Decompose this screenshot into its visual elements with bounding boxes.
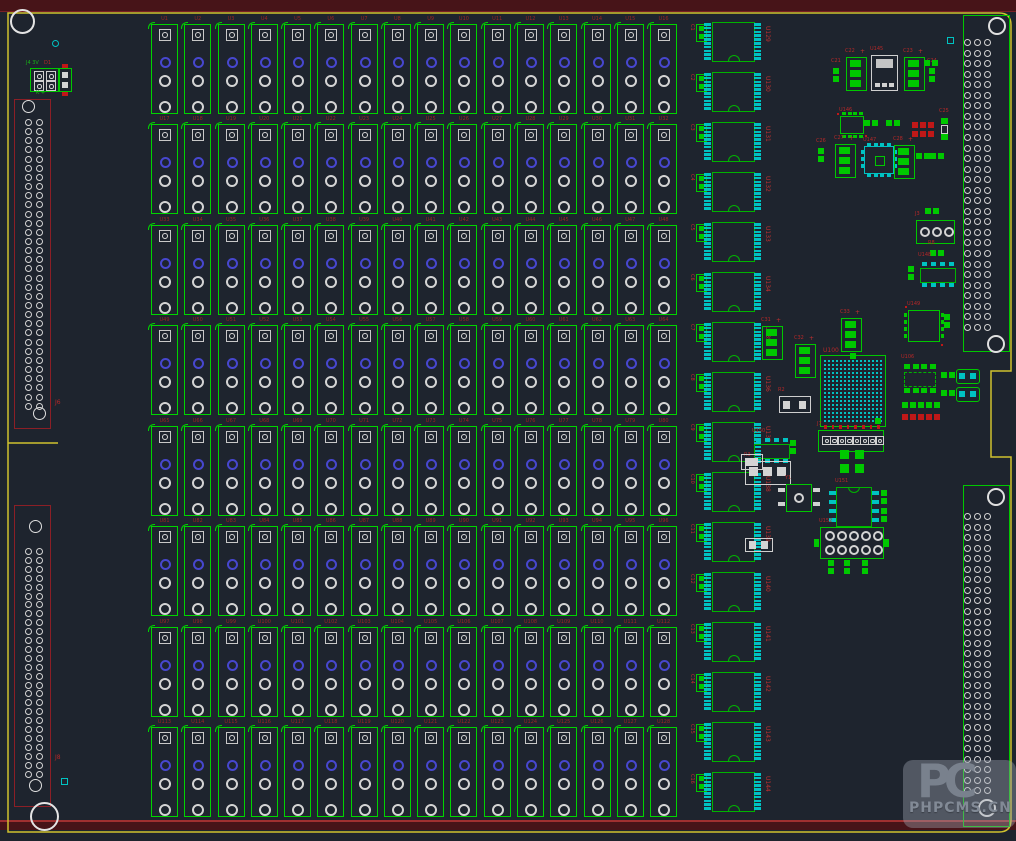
- relay-footprint[interactable]: U70: [317, 426, 344, 516]
- cap3-footprint[interactable]: +C32: [795, 344, 816, 378]
- relay-footprint[interactable]: U37: [284, 225, 311, 315]
- bga-ball: [836, 376, 838, 378]
- resnet2w-footprint[interactable]: [741, 454, 763, 470]
- relay-pad-blue: [193, 57, 204, 68]
- bga-ball: [824, 400, 826, 402]
- bga-ball: [876, 372, 878, 374]
- qfn-footprint[interactable]: U149: [908, 310, 940, 342]
- relay-footprint[interactable]: U40: [384, 225, 411, 315]
- relay-footprint[interactable]: U114: [184, 727, 211, 817]
- relay-footprint[interactable]: U60: [517, 325, 544, 415]
- relay-pad: [192, 175, 204, 187]
- relay-pad-blue: [526, 760, 537, 771]
- bga-ball: [864, 400, 866, 402]
- relay-pad: [558, 75, 570, 87]
- bga-ball: [832, 396, 834, 398]
- relay-footprint[interactable]: U80: [650, 426, 677, 516]
- relay-pad: [592, 175, 604, 187]
- connector-pad: [974, 303, 981, 310]
- ic-pad: [754, 677, 761, 680]
- relay-pad-hole: [328, 635, 334, 641]
- relay-footprint[interactable]: U122: [450, 727, 477, 817]
- relay-pad-hole: [595, 233, 601, 239]
- relay-footprint[interactable]: U98: [184, 627, 211, 717]
- ic-pad: [704, 803, 711, 806]
- relay-footprint[interactable]: U116: [251, 727, 278, 817]
- connector-pad: [36, 339, 43, 346]
- relay-label: U97: [152, 620, 177, 625]
- relay-footprint[interactable]: U25: [417, 124, 444, 214]
- connector-pad: [964, 313, 971, 320]
- relay-footprint[interactable]: U92: [517, 526, 544, 616]
- relay-footprint[interactable]: U103: [351, 627, 378, 717]
- conn2-footprint[interactable]: [58, 68, 72, 92]
- relay-footprint[interactable]: U17: [151, 124, 178, 214]
- relay-pad: [525, 302, 537, 314]
- relay-pad: [425, 477, 437, 489]
- cap3-footprint[interactable]: +C27: [835, 144, 856, 178]
- relay-footprint[interactable]: U75: [484, 426, 511, 516]
- osc-footprint[interactable]: Y1: [786, 484, 812, 512]
- pad: [840, 464, 849, 473]
- relay-pad-square: [226, 632, 238, 644]
- relay-footprint[interactable]: U19: [218, 124, 245, 214]
- relay-footprint[interactable]: U63: [617, 325, 644, 415]
- relay-footprint[interactable]: U89: [417, 526, 444, 616]
- header8-footprint[interactable]: J7: [818, 430, 884, 452]
- connector-pad: [964, 282, 971, 289]
- bga-ball: [876, 404, 878, 406]
- relay-footprint[interactable]: U115: [218, 727, 245, 817]
- relay-footprint[interactable]: U22: [317, 124, 344, 214]
- cap-label: C11: [689, 524, 694, 534]
- relay-pad-blue: [426, 358, 437, 369]
- relay-footprint[interactable]: U62: [584, 325, 611, 415]
- relay-footprint[interactable]: U42: [450, 225, 477, 315]
- relay-pad-blue: [426, 559, 437, 570]
- pin1-mark: [514, 22, 521, 29]
- relay-footprint[interactable]: U76: [517, 426, 544, 516]
- ic-pad: [754, 584, 761, 587]
- bga-ball: [868, 364, 870, 366]
- relay-footprint[interactable]: U120: [384, 727, 411, 817]
- relay-footprint[interactable]: U51: [218, 325, 245, 415]
- ic-footprint[interactable]: C7U135: [691, 320, 773, 364]
- ic-notch: [728, 255, 740, 261]
- ic-pad: [754, 553, 761, 556]
- relay-pad: [259, 376, 271, 388]
- relay-footprint[interactable]: U36: [251, 225, 278, 315]
- connector-pad: [984, 650, 991, 657]
- relay-pad-square: [325, 531, 337, 543]
- relay-footprint[interactable]: U59: [484, 325, 511, 415]
- relay-footprint[interactable]: U113: [151, 727, 178, 817]
- relay-footprint[interactable]: U94: [584, 526, 611, 616]
- relay-footprint[interactable]: U96: [650, 526, 677, 616]
- relay-footprint[interactable]: U18: [184, 124, 211, 214]
- relay-pad: [592, 101, 604, 113]
- relay-pad: [658, 75, 670, 87]
- relay-footprint[interactable]: U46: [584, 225, 611, 315]
- pad: [699, 734, 704, 739]
- pad: [699, 526, 704, 531]
- pad: [908, 70, 919, 77]
- relay-footprint[interactable]: U87: [351, 526, 378, 616]
- soic8-footprint[interactable]: U148: [920, 262, 956, 288]
- ic-footprint[interactable]: C16U144: [691, 770, 773, 814]
- pad: [853, 112, 857, 115]
- ic-pad: [754, 307, 761, 310]
- pad: [938, 250, 944, 256]
- relay-footprint[interactable]: U119: [351, 727, 378, 817]
- ic-pad: [754, 288, 761, 291]
- ic-footprint[interactable]: C3U131: [691, 120, 773, 164]
- relay-footprint[interactable]: U110: [584, 627, 611, 717]
- ic-pad: [754, 423, 761, 426]
- relay-footprint[interactable]: U28: [517, 124, 544, 214]
- relay-pad-hole: [195, 434, 201, 440]
- header3-footprint[interactable]: J3: [916, 220, 955, 244]
- relay-pad-square: [226, 732, 238, 744]
- relay-label: U42: [451, 218, 476, 223]
- relay-footprint[interactable]: U38: [317, 225, 344, 315]
- ic-pad: [704, 373, 711, 376]
- relay-footprint[interactable]: U54: [317, 325, 344, 415]
- left-edge-connector[interactable]: [14, 505, 51, 807]
- relay-footprint[interactable]: U47: [617, 225, 644, 315]
- relay-pad: [292, 778, 304, 790]
- connector-pad: [984, 71, 991, 78]
- relay-footprint[interactable]: U74: [450, 426, 477, 516]
- relay-footprint[interactable]: U99: [218, 627, 245, 717]
- relay-pad-square: [159, 230, 171, 242]
- relay-footprint[interactable]: U49: [151, 325, 178, 415]
- connector-pad: [964, 545, 971, 552]
- cap3-footprint[interactable]: +C31: [762, 326, 783, 360]
- connector-pad: [25, 174, 32, 181]
- relay-label: U16: [651, 17, 676, 22]
- relay-footprint[interactable]: U82: [184, 526, 211, 616]
- relay-footprint[interactable]: U107: [484, 627, 511, 717]
- ic-footprint[interactable]: C5U133: [691, 220, 773, 264]
- bga-ball: [860, 416, 862, 418]
- relay-label: U13: [551, 17, 576, 22]
- connector-pad: [36, 220, 43, 227]
- connector-pad: [984, 197, 991, 204]
- relay-footprint[interactable]: U117: [284, 727, 311, 817]
- pin1-mark: [148, 725, 155, 732]
- relay-footprint[interactable]: U12: [517, 24, 544, 114]
- relay-footprint[interactable]: U3: [218, 24, 245, 114]
- pad4box-footprint[interactable]: [30, 68, 60, 92]
- dipsocket-footprint[interactable]: U152: [820, 527, 884, 559]
- relay-footprint[interactable]: U72: [384, 426, 411, 516]
- pin1-mark: [148, 223, 155, 230]
- relay-footprint[interactable]: U2: [184, 24, 211, 114]
- relay-footprint[interactable]: U90: [450, 526, 477, 616]
- relay-footprint[interactable]: U71: [351, 426, 378, 516]
- pad: [766, 339, 777, 346]
- resnet2w-label: R2: [778, 388, 785, 393]
- ic-footprint[interactable]: C4U132: [691, 170, 773, 214]
- relay-footprint[interactable]: U20: [251, 124, 278, 214]
- relay-footprint[interactable]: U6: [317, 24, 344, 114]
- bga-ball: [836, 380, 838, 382]
- ic-footprint[interactable]: C1U129: [691, 20, 773, 64]
- relay-footprint[interactable]: U64: [650, 325, 677, 415]
- relay-footprint[interactable]: U88: [384, 526, 411, 616]
- relay-footprint[interactable]: U109: [550, 627, 577, 717]
- pad: [949, 372, 955, 378]
- relay-footprint[interactable]: U13: [550, 24, 577, 114]
- ic-notch: [728, 655, 740, 661]
- relay-footprint[interactable]: U9: [417, 24, 444, 114]
- relay-footprint[interactable]: U100: [251, 627, 278, 717]
- relay-footprint[interactable]: U79: [617, 426, 644, 516]
- connector-pad: [36, 165, 43, 172]
- relay-pad-square: [658, 29, 670, 41]
- relay-footprint[interactable]: U24: [384, 124, 411, 214]
- bga-ball: [836, 364, 838, 366]
- pad: [818, 156, 824, 162]
- pad: [873, 545, 883, 555]
- relay-footprint[interactable]: U55: [351, 325, 378, 415]
- relay-footprint[interactable]: U58: [450, 325, 477, 415]
- connector-pad: [984, 292, 991, 299]
- relay-footprint[interactable]: U35: [218, 225, 245, 315]
- relay-footprint[interactable]: U91: [484, 526, 511, 616]
- relay-pad: [392, 603, 404, 615]
- relay-footprint[interactable]: U97: [151, 627, 178, 717]
- pin1-mark: [148, 424, 155, 431]
- relay-pad-blue: [626, 258, 637, 269]
- bga-ball: [848, 380, 850, 382]
- ic-footprint[interactable]: C2U130: [691, 70, 773, 114]
- resnet2w-footprint[interactable]: R2: [779, 396, 811, 413]
- relay-footprint[interactable]: U41: [417, 225, 444, 315]
- smdres-footprint[interactable]: [956, 387, 980, 402]
- left-edge-connector[interactable]: [14, 99, 51, 429]
- ic-footprint[interactable]: C6U134: [691, 270, 773, 314]
- pin1-mark: [414, 22, 421, 29]
- relay-footprint[interactable]: U52: [251, 325, 278, 415]
- relay-footprint[interactable]: U112: [650, 627, 677, 717]
- relay-footprint[interactable]: U11: [484, 24, 511, 114]
- pin1-mark: [614, 424, 621, 431]
- relay-pad-blue: [526, 358, 537, 369]
- relay-footprint[interactable]: U33: [151, 225, 178, 315]
- pin1-mark: [481, 223, 488, 230]
- cap3-footprint[interactable]: +C28: [894, 145, 915, 179]
- relay-footprint[interactable]: U104: [384, 627, 411, 717]
- ic-footprint[interactable]: C12U140: [691, 570, 773, 614]
- bga-ball: [856, 364, 858, 366]
- relay-label: U44: [518, 218, 543, 223]
- pcb-layout-canvas[interactable]: U1U2U3U4U5U6U7U8U9U10U11U12U13U14U15U16U…: [0, 0, 1016, 841]
- relay-footprint[interactable]: U102: [317, 627, 344, 717]
- relay-footprint[interactable]: U7: [351, 24, 378, 114]
- relay-footprint[interactable]: U29: [550, 124, 577, 214]
- relay-footprint[interactable]: U84: [251, 526, 278, 616]
- connector-pad: [974, 71, 981, 78]
- bga-footprint[interactable]: U100: [820, 355, 886, 427]
- bga-ball: [828, 404, 830, 406]
- pad: [872, 509, 879, 513]
- cap-label: C8: [689, 374, 694, 381]
- relay-footprint[interactable]: U69: [284, 426, 311, 516]
- relay-pad-square: [226, 129, 238, 141]
- resnet2w-footprint[interactable]: [745, 538, 773, 552]
- ic-pad: [754, 731, 761, 734]
- relay-pad-square: [159, 632, 171, 644]
- relay-footprint[interactable]: U14: [584, 24, 611, 114]
- qfp_cyan-footprint[interactable]: U147: [864, 146, 894, 174]
- relay-footprint[interactable]: U65: [151, 426, 178, 516]
- relay-footprint[interactable]: U8: [384, 24, 411, 114]
- relay-footprint[interactable]: U108: [517, 627, 544, 717]
- relay-footprint[interactable]: U123: [484, 727, 511, 817]
- relay-footprint[interactable]: U77: [550, 426, 577, 516]
- relay-pad: [159, 804, 171, 816]
- reg-footprint[interactable]: U145: [871, 55, 898, 91]
- ic-pad: [704, 381, 711, 384]
- relay-pad: [492, 302, 504, 314]
- relay-footprint[interactable]: U57: [417, 325, 444, 415]
- relay-footprint[interactable]: U21: [284, 124, 311, 214]
- relay-footprint[interactable]: U43: [484, 225, 511, 315]
- relay-footprint[interactable]: U124: [517, 727, 544, 817]
- relay-footprint[interactable]: U101: [284, 627, 311, 717]
- relay-pad-hole: [528, 233, 534, 239]
- relay-footprint[interactable]: U83: [218, 526, 245, 616]
- ic-pad: [754, 757, 761, 760]
- relay-footprint[interactable]: U5: [284, 24, 311, 114]
- relay-footprint[interactable]: U10: [450, 24, 477, 114]
- relay-footprint[interactable]: U23: [351, 124, 378, 214]
- relay-footprint[interactable]: U106: [450, 627, 477, 717]
- relay-pad-blue: [393, 660, 404, 671]
- relay-footprint[interactable]: U48: [650, 225, 677, 315]
- relay-footprint[interactable]: U121: [417, 727, 444, 817]
- relay-pad: [592, 201, 604, 213]
- bga-ball: [852, 396, 854, 398]
- relay-pad-blue: [193, 358, 204, 369]
- relay-pad: [226, 376, 238, 388]
- relay-footprint[interactable]: U68: [251, 426, 278, 516]
- connector-pad: [36, 762, 43, 769]
- bga-ball: [856, 376, 858, 378]
- relay-pad-blue: [160, 157, 171, 168]
- relay-pad: [292, 302, 304, 314]
- relay-pad-hole: [628, 735, 634, 741]
- relay-pad: [259, 302, 271, 314]
- connector-pad: [36, 646, 43, 653]
- relay-footprint[interactable]: U118: [317, 727, 344, 817]
- relay-pad: [658, 402, 670, 414]
- relay-footprint[interactable]: U27: [484, 124, 511, 214]
- relay-footprint[interactable]: U26: [450, 124, 477, 214]
- relay-footprint[interactable]: U125: [550, 727, 577, 817]
- relay-footprint[interactable]: U30: [584, 124, 611, 214]
- pin1-mark: [547, 22, 554, 29]
- relay-footprint[interactable]: U50: [184, 325, 211, 415]
- relay-footprint[interactable]: U34: [184, 225, 211, 315]
- relay-pad-hole: [461, 132, 467, 138]
- relay-footprint[interactable]: U61: [550, 325, 577, 415]
- ic-footprint[interactable]: C14U142: [691, 670, 773, 714]
- ic-pad: [704, 327, 711, 330]
- cap3-footprint[interactable]: +C33: [841, 318, 862, 352]
- relay-footprint[interactable]: U4: [251, 24, 278, 114]
- relay-footprint[interactable]: U32: [650, 124, 677, 214]
- relay-footprint[interactable]: U81: [151, 526, 178, 616]
- qfp_green-footprint[interactable]: U146: [840, 116, 864, 134]
- relay-footprint[interactable]: U31: [617, 124, 644, 214]
- relay-footprint[interactable]: U86: [317, 526, 344, 616]
- relay-footprint[interactable]: U45: [550, 225, 577, 315]
- relay-pad: [159, 201, 171, 213]
- relay-footprint[interactable]: U95: [617, 526, 644, 616]
- smdres-footprint[interactable]: [956, 369, 980, 384]
- relay-footprint[interactable]: U53: [284, 325, 311, 415]
- relay-pad-hole: [395, 333, 401, 339]
- relay-footprint[interactable]: U85: [284, 526, 311, 616]
- ic-pad: [704, 88, 711, 91]
- relay-footprint[interactable]: U44: [517, 225, 544, 315]
- ic-pad: [754, 50, 761, 53]
- relay-footprint[interactable]: U111: [617, 627, 644, 717]
- relay-footprint[interactable]: U67: [218, 426, 245, 516]
- relay-footprint[interactable]: U126: [584, 727, 611, 817]
- soic8g-footprint[interactable]: U106: [903, 364, 937, 394]
- relay-footprint[interactable]: U66: [184, 426, 211, 516]
- relay-footprint[interactable]: U93: [550, 526, 577, 616]
- pin1-mark: [181, 122, 188, 129]
- relay-footprint[interactable]: U16: [650, 24, 677, 114]
- cap3-footprint[interactable]: +C23: [904, 57, 925, 91]
- relay-footprint[interactable]: U127: [617, 727, 644, 817]
- cap3-footprint[interactable]: +C22: [846, 57, 867, 91]
- relay-pad-blue: [526, 157, 537, 168]
- ic-footprint[interactable]: C13U141: [691, 620, 773, 664]
- ic-pad: [704, 273, 711, 276]
- ic-pad: [704, 338, 711, 341]
- cap3-label: C27: [834, 136, 844, 141]
- relay-label: U24: [385, 117, 410, 122]
- ic-footprint[interactable]: C8U136: [691, 370, 773, 414]
- relay-footprint[interactable]: U128: [650, 727, 677, 817]
- ic-pad: [704, 331, 711, 334]
- relay-footprint[interactable]: U73: [417, 426, 444, 516]
- relay-footprint[interactable]: U1: [151, 24, 178, 114]
- pad: [62, 82, 68, 88]
- relay-label: U37: [285, 218, 310, 223]
- relay-footprint[interactable]: U105: [417, 627, 444, 717]
- bga-ball: [852, 376, 854, 378]
- relay-footprint[interactable]: U78: [584, 426, 611, 516]
- ic-footprint[interactable]: C15U143: [691, 720, 773, 764]
- sideic-footprint[interactable]: U151: [836, 487, 872, 527]
- bga-ball: [864, 408, 866, 410]
- relay-footprint[interactable]: U15: [617, 24, 644, 114]
- relay-pad: [226, 75, 238, 87]
- ic-pad: [754, 523, 761, 526]
- relay-pad: [192, 75, 204, 87]
- relay-pad-hole: [461, 333, 467, 339]
- relay-footprint[interactable]: U39: [351, 225, 378, 315]
- ic-pad: [754, 292, 761, 295]
- relay-footprint[interactable]: U56: [384, 325, 411, 415]
